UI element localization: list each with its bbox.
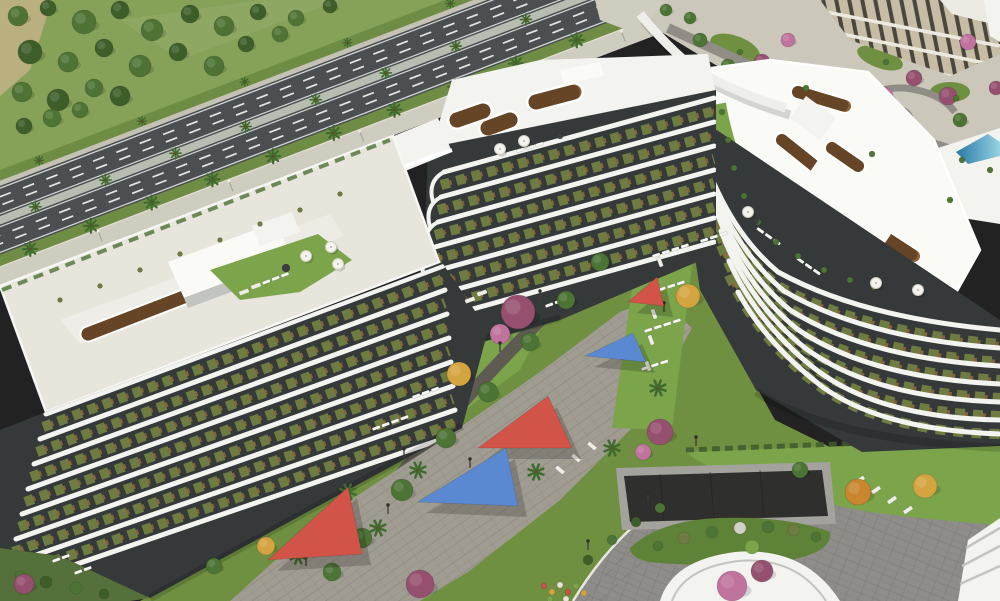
shrub xyxy=(734,522,746,534)
plaza-palm-trunk xyxy=(377,527,379,529)
plaza-palm-trunk xyxy=(535,471,537,473)
shrub xyxy=(549,589,555,595)
shrub xyxy=(653,541,663,551)
shrub xyxy=(731,165,737,171)
shrub xyxy=(557,582,563,588)
shrub xyxy=(547,596,553,601)
parasol-tip xyxy=(917,289,919,291)
field-tree-light xyxy=(87,81,95,89)
lamp-head xyxy=(386,503,389,506)
shrub xyxy=(489,142,495,148)
shrub xyxy=(298,208,303,213)
lamp-head xyxy=(498,341,501,344)
courtyard-tree-light xyxy=(481,385,490,394)
shrub xyxy=(631,517,641,527)
shrub xyxy=(282,264,290,272)
field-tree-light xyxy=(290,12,297,19)
field-tree-light xyxy=(171,45,179,53)
render-canvas xyxy=(0,0,1000,601)
shrub xyxy=(678,532,690,544)
parasol-tip xyxy=(875,282,877,284)
shrub xyxy=(655,503,665,513)
courtyard-tree-light xyxy=(848,482,860,494)
courtyard-tree-light xyxy=(794,464,801,471)
parasol-tip xyxy=(523,140,525,142)
field-tree-light xyxy=(74,104,81,111)
field-tree-light xyxy=(183,7,191,15)
shrub xyxy=(338,192,343,197)
shrub xyxy=(58,298,63,303)
plaza-palm-trunk xyxy=(417,469,419,471)
shrub xyxy=(741,193,747,199)
courtyard-tree-light xyxy=(394,482,404,492)
shrub xyxy=(947,197,953,203)
courtyard-tree-light xyxy=(410,574,423,587)
district-tree-light xyxy=(941,89,949,97)
plaza-palm-trunk xyxy=(611,447,613,449)
shrub xyxy=(788,524,800,536)
courtyard-tree-light xyxy=(505,299,520,314)
shrub xyxy=(706,526,718,538)
courtyard-tree-light xyxy=(721,575,735,589)
shrub xyxy=(573,583,579,589)
shrub xyxy=(821,267,827,273)
lamp-head xyxy=(446,395,449,398)
field-tree-light xyxy=(97,41,105,49)
shrub xyxy=(583,555,593,565)
field-tree-light xyxy=(252,6,259,13)
shrub xyxy=(883,59,889,65)
field-tree-light xyxy=(50,92,60,102)
shrub xyxy=(745,540,759,554)
field-tree-light xyxy=(207,59,216,68)
field-tree-light xyxy=(45,111,53,119)
lamp-head xyxy=(538,289,541,292)
shrub xyxy=(581,590,587,596)
field-tree-light xyxy=(274,28,281,35)
shrub xyxy=(565,589,571,595)
shrub xyxy=(847,277,853,283)
shrub xyxy=(40,576,52,588)
shrub xyxy=(773,239,779,245)
field-tree-light xyxy=(11,9,20,18)
courtyard-tree-light xyxy=(450,365,461,376)
district-tree-light xyxy=(908,72,915,79)
field-tree-light xyxy=(132,58,142,68)
field-tree-light xyxy=(42,2,49,9)
shrub xyxy=(258,222,263,227)
parasol-tip xyxy=(337,263,339,265)
parasol-tip xyxy=(305,255,307,257)
shrub xyxy=(953,95,959,101)
shrub xyxy=(725,137,731,143)
field-tree-light xyxy=(15,85,24,94)
courtyard-tree-light xyxy=(523,335,531,343)
shrub xyxy=(959,157,965,163)
parasol-tip xyxy=(747,211,749,213)
courtyard-tree-light xyxy=(17,577,26,586)
shrub xyxy=(557,133,563,139)
shrub xyxy=(607,535,617,545)
district-tree-light xyxy=(783,35,789,41)
courtyard-tree-light xyxy=(493,327,502,336)
lamp-head xyxy=(646,491,649,494)
field-tree-light xyxy=(113,3,121,11)
district-tree-light xyxy=(662,6,667,11)
district-tree-light xyxy=(695,35,701,41)
courtyard-tree-light xyxy=(439,431,448,440)
courtyard-tree-light xyxy=(754,563,764,573)
field-tree-light xyxy=(75,13,86,24)
courtyard-tree-light xyxy=(208,560,215,567)
shrub xyxy=(753,218,759,224)
parasol-tip xyxy=(499,148,501,150)
courtyard-tree-light xyxy=(916,477,927,488)
parasol-tip xyxy=(330,246,332,248)
field-tree-light xyxy=(18,120,25,127)
district-tree-light xyxy=(955,115,961,121)
field-tree-light xyxy=(240,38,247,45)
shrub xyxy=(138,268,143,273)
shrub xyxy=(563,596,569,601)
district-tree-light xyxy=(686,14,691,19)
courtyard-tree-light xyxy=(637,446,644,453)
shrub xyxy=(737,49,743,55)
lamp-head xyxy=(402,447,405,450)
shrub xyxy=(541,583,547,589)
field-tree-light xyxy=(113,89,122,98)
shrub xyxy=(98,284,103,289)
field-tree-light xyxy=(325,1,331,7)
lamp-head xyxy=(468,457,471,460)
shrub xyxy=(70,582,82,594)
shrub xyxy=(719,109,725,115)
field-tree-light xyxy=(217,19,226,28)
shrub xyxy=(811,532,821,542)
district-tree-light xyxy=(991,83,997,89)
plaza-palm-trunk xyxy=(657,387,659,389)
courtyard-tree-light xyxy=(259,539,267,547)
courtyard-tree-light xyxy=(650,422,662,434)
field-tree-light xyxy=(61,55,70,64)
shrub xyxy=(99,589,109,599)
lamp-head xyxy=(694,435,697,438)
shrub xyxy=(803,85,809,91)
courtyard-tree-light xyxy=(679,287,690,298)
shrub xyxy=(987,167,993,173)
shrub xyxy=(218,238,223,243)
field-tree-light xyxy=(21,43,32,54)
shrub xyxy=(795,253,801,259)
field-tree-light xyxy=(144,22,154,32)
district-tree-light xyxy=(962,36,969,43)
courtyard-tree-light xyxy=(559,293,567,301)
architectural-render xyxy=(0,0,1000,601)
shrub xyxy=(762,521,774,533)
shrub xyxy=(178,252,183,257)
shrub xyxy=(869,151,875,157)
lamp-head xyxy=(586,539,589,542)
courtyard-tree-light xyxy=(593,255,601,263)
